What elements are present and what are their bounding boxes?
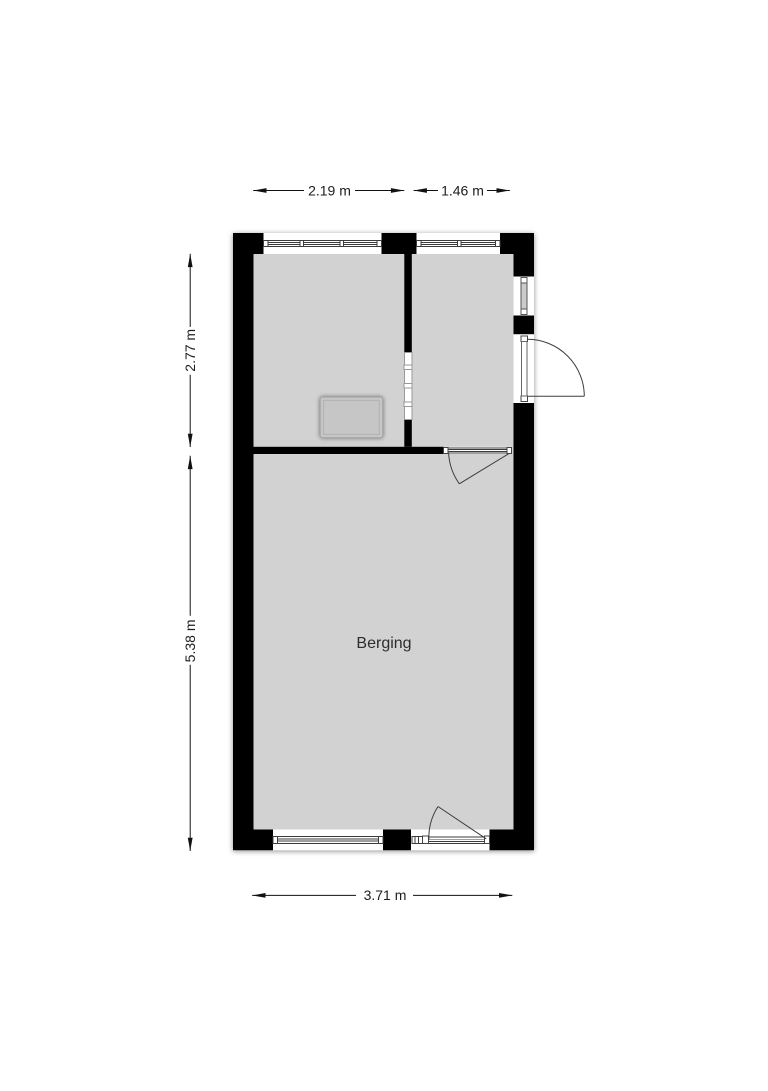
svg-text:2.19 m: 2.19 m — [308, 182, 351, 198]
svg-text:1.46 m: 1.46 m — [441, 182, 484, 198]
svg-text:3.71 m: 3.71 m — [364, 887, 407, 903]
svg-text:5.38 m: 5.38 m — [182, 619, 198, 662]
svg-text:2.77 m: 2.77 m — [182, 329, 198, 372]
svg-text:Berging: Berging — [356, 635, 411, 652]
